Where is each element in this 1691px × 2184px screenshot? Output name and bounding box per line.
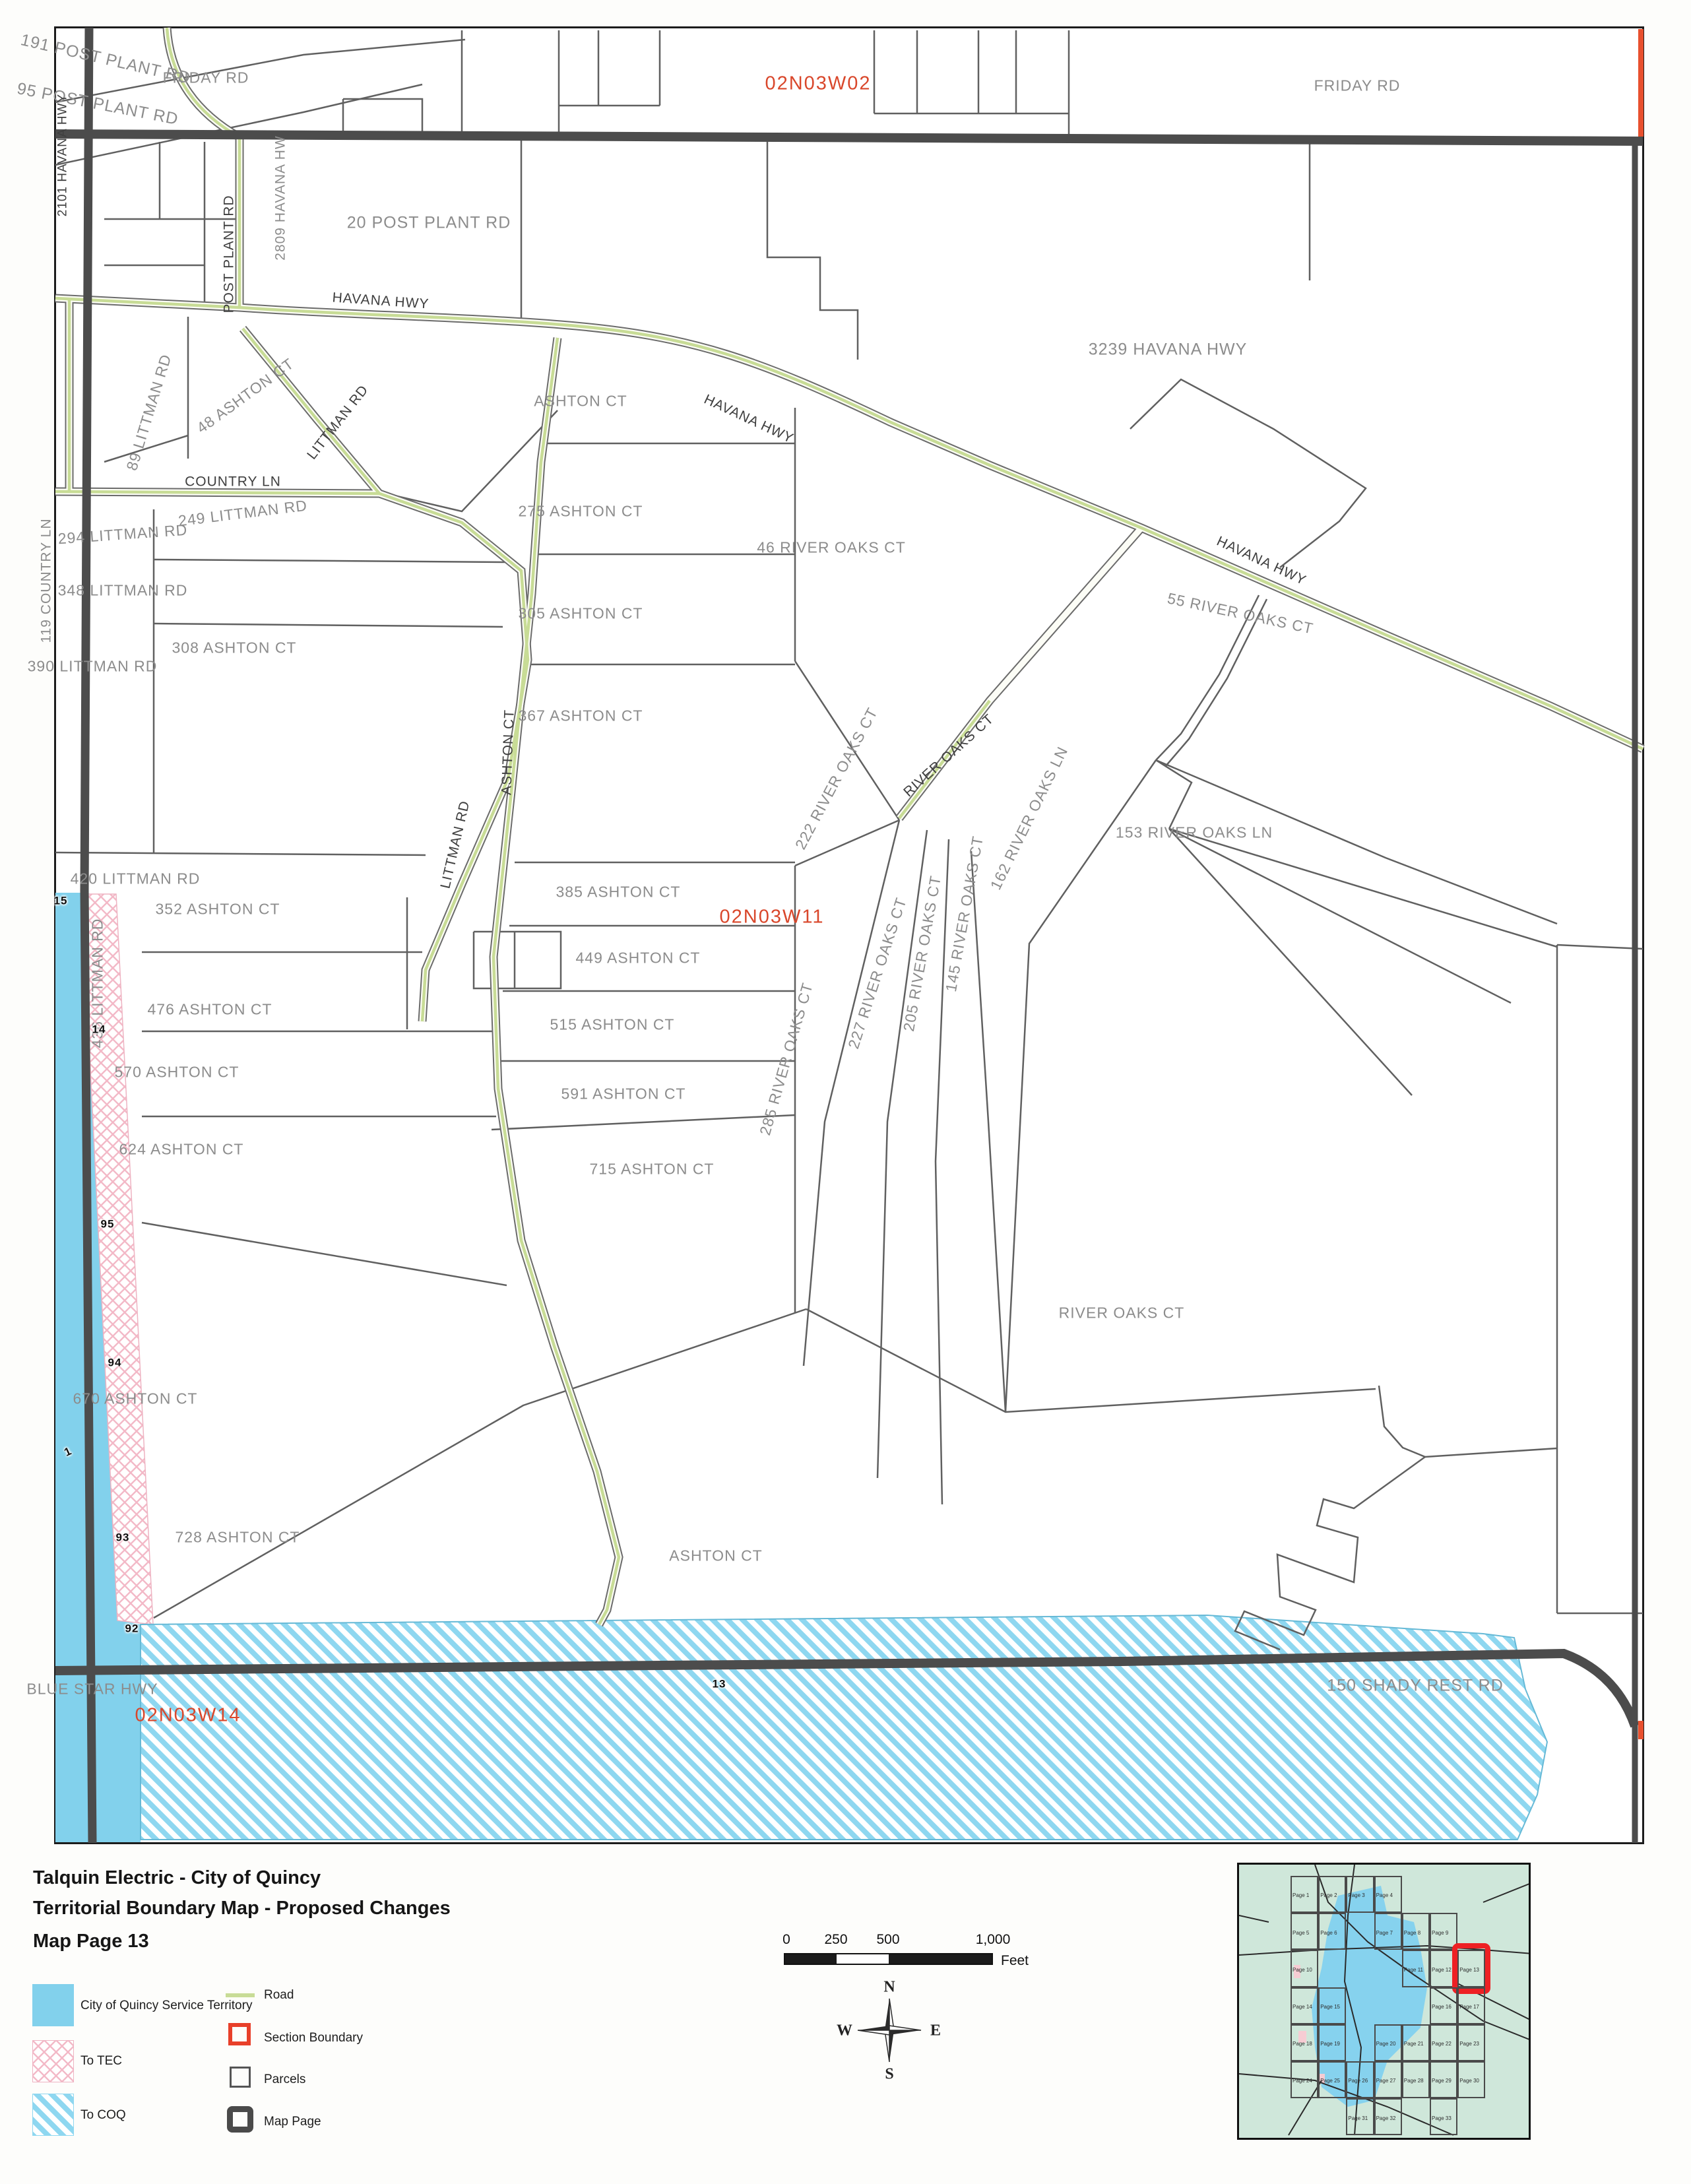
- legend-swatch-parcels: [230, 2067, 251, 2088]
- inset-page-25: Page 25: [1318, 2061, 1346, 2098]
- inset-page-20: Page 20: [1374, 2024, 1402, 2061]
- legend-swatch-quincy-territory: [32, 1984, 74, 2026]
- legend-label-parcels: Parcels: [264, 2072, 305, 2087]
- inset-page-label: Page 27: [1376, 2078, 1396, 2084]
- parcel-number: 15: [54, 895, 68, 907]
- map-label: 390 LITTMAN RD: [28, 659, 158, 674]
- map-label: 308 ASHTON CT: [172, 641, 297, 656]
- map-title: Talquin Electric - City of Quincy: [33, 1867, 321, 1889]
- map-label: 449 ASHTON CT: [576, 951, 701, 966]
- inset-page-label: Page 25: [1320, 2078, 1340, 2084]
- map-label: 46 RIVER OAKS CT: [757, 540, 906, 556]
- map-label: 150 SHADY REST RD: [1327, 1678, 1504, 1694]
- inset-page-6: Page 6: [1318, 1913, 1346, 1950]
- inset-page-label: Page 19: [1320, 2041, 1340, 2047]
- parcel-number: 94: [108, 1357, 122, 1368]
- legend-swatch-to-coq: [32, 2094, 74, 2136]
- compass-s: S: [885, 2066, 893, 2084]
- map-label: 570 ASHTON CT: [115, 1065, 239, 1080]
- map-label: 670 ASHTON CT: [73, 1392, 198, 1407]
- map-label: 2809 HAVANA HW: [274, 135, 288, 260]
- map-label: 2101 HAVANA HWY: [57, 94, 69, 216]
- inset-page-3: Page 3: [1346, 1876, 1374, 1913]
- compass-rose: [846, 1983, 932, 2078]
- map-page-sheet: 191 POST PLANT RD95 POST PLANT RDFRIDAY …: [0, 0, 1691, 2184]
- map-subtitle: Territorial Boundary Map - Proposed Chan…: [33, 1898, 451, 1919]
- parcel-number: 95: [101, 1219, 115, 1230]
- inset-page-label: Page 23: [1459, 2041, 1479, 2047]
- map-label: ASHTON CT: [534, 394, 627, 409]
- map-label: 385 ASHTON CT: [556, 885, 681, 900]
- legend-label-to-tec: To TEC: [80, 2054, 122, 2069]
- section-label: 02N03W02: [765, 75, 871, 94]
- inset-page-label: Page 5: [1292, 1930, 1309, 1936]
- inset-current-page-highlight: [1452, 1943, 1490, 1993]
- inset-page-22: Page 22: [1430, 2024, 1457, 2061]
- inset-page-4: Page 4: [1374, 1876, 1402, 1913]
- inset-page-2: Page 2: [1318, 1876, 1346, 1913]
- inset-page-19: Page 19: [1318, 2024, 1346, 2061]
- inset-page-label: Page 14: [1292, 2004, 1312, 2010]
- legend-label-road: Road: [264, 1988, 294, 2003]
- legend-label-to-coq: To COQ: [80, 2108, 126, 2123]
- map-label: 715 ASHTON CT: [590, 1162, 715, 1177]
- map-label: 275 ASHTON CT: [519, 504, 643, 519]
- compass-w: W: [837, 2022, 852, 2040]
- parcel-number: 93: [116, 1532, 130, 1543]
- map-label: 20 POST PLANT RD: [347, 215, 511, 232]
- map-label: BLUE STAR HWY: [26, 1682, 158, 1697]
- inset-page-label: Page 30: [1459, 2078, 1479, 2084]
- section-label: 02N03W14: [135, 1706, 241, 1725]
- inset-page-label: Page 18: [1292, 2041, 1312, 2047]
- map-label: 153 RIVER OAKS LN: [1116, 825, 1273, 841]
- map-label: 476 ASHTON CT: [148, 1002, 272, 1017]
- inset-page-label: Page 7: [1376, 1930, 1393, 1936]
- legend-swatch-road: [223, 1985, 257, 2005]
- inset-page-label: Page 15: [1320, 2004, 1340, 2010]
- map-label: POST PLANT RD: [222, 195, 236, 313]
- parcel-number: 92: [125, 1623, 139, 1634]
- inset-page-32: Page 32: [1374, 2098, 1402, 2135]
- inset-page-label: Page 21: [1404, 2041, 1424, 2047]
- parcel-number: 14: [92, 1024, 106, 1035]
- map-label: 119 COUNTRY LN: [40, 518, 53, 643]
- map-label: 352 ASHTON CT: [156, 902, 280, 917]
- map-canvas: [0, 0, 1691, 2184]
- scale-tick-0: 0: [782, 1932, 790, 1948]
- map-label: 728 ASHTON CT: [175, 1530, 300, 1545]
- map-label: FRIDAY RD: [1314, 79, 1401, 94]
- map-label: ASHTON CT: [669, 1549, 762, 1564]
- map-page-number: Map Page 13: [33, 1931, 149, 1952]
- inset-page-label: Page 9: [1432, 1930, 1448, 1936]
- scale-tick-500: 500: [876, 1932, 899, 1948]
- green-roads: [55, 28, 1643, 1624]
- inset-page-10: Page 10: [1291, 1950, 1318, 1987]
- map-label: 305 ASHTON CT: [519, 606, 643, 622]
- inset-page-14: Page 14: [1291, 1987, 1318, 2024]
- inset-page-24: Page 24: [1291, 2061, 1318, 2098]
- map-label: 624 ASHTON CT: [119, 1142, 244, 1157]
- inset-page-31: Page 31: [1346, 2098, 1374, 2135]
- inset-page-11: Page 11: [1402, 1950, 1430, 1987]
- inset-page-label: Page 8: [1404, 1930, 1420, 1936]
- thick-roads: [55, 28, 1643, 1843]
- inset-page-5: Page 5: [1291, 1913, 1318, 1950]
- inset-page-label: Page 4: [1376, 1892, 1393, 1898]
- inset-page-28: Page 28: [1402, 2061, 1430, 2098]
- compass-e: E: [930, 2022, 941, 2040]
- inset-page-label: Page 1: [1292, 1892, 1309, 1898]
- inset-page-30: Page 30: [1457, 2061, 1485, 2098]
- inset-page-label: Page 2: [1320, 1892, 1337, 1898]
- inset-page-27: Page 27: [1374, 2061, 1402, 2098]
- parcel-number: 13: [713, 1679, 726, 1690]
- inset-page-8: Page 8: [1402, 1913, 1430, 1950]
- compass-n: N: [883, 1979, 895, 1997]
- inset-page-label: Page 20: [1376, 2041, 1396, 2047]
- inset-page-label: Page 3: [1348, 1892, 1364, 1898]
- map-label: FRIDAY RD: [163, 71, 249, 86]
- legend-swatch-map-page: [227, 2106, 253, 2133]
- inset-page-21: Page 21: [1402, 2024, 1430, 2061]
- inset-page-label: Page 32: [1376, 2115, 1396, 2121]
- map-label: 3239 HAVANA HWY: [1089, 342, 1248, 358]
- inset-page-29: Page 29: [1430, 2061, 1457, 2098]
- inset-page-23: Page 23: [1457, 2024, 1485, 2061]
- inset-page-16: Page 16: [1430, 1987, 1457, 2024]
- inset-page-label: Page 22: [1432, 2041, 1452, 2047]
- inset-page-15: Page 15: [1318, 1987, 1346, 2024]
- scale-unit: Feet: [1001, 1953, 1029, 1969]
- scale-tick-250: 250: [824, 1932, 847, 1948]
- inset-page-label: Page 31: [1348, 2115, 1368, 2121]
- map-label: 515 ASHTON CT: [550, 1017, 675, 1033]
- inset-page-label: Page 26: [1348, 2078, 1368, 2084]
- inset-page-17: Page 17: [1457, 1987, 1485, 2024]
- inset-page-26: Page 26: [1346, 2061, 1374, 2098]
- inset-page-label: Page 24: [1292, 2078, 1312, 2084]
- legend-label-section-boundary: Section Boundary: [264, 2031, 363, 2045]
- scale-tick-1000: 1,000: [976, 1932, 1011, 1948]
- scale-bar: [784, 1953, 993, 1965]
- map-label: RIVER OAKS CT: [1059, 1306, 1185, 1321]
- legend-swatch-section-boundary: [228, 2023, 251, 2045]
- inset-page-label: Page 33: [1432, 2115, 1452, 2121]
- legend-swatch-to-tec: [32, 2040, 74, 2082]
- map-label: 591 ASHTON CT: [561, 1087, 686, 1102]
- inset-page-label: Page 16: [1432, 2004, 1452, 2010]
- parcel-lines: [55, 30, 1643, 1650]
- inset-page-label: Page 10: [1292, 1967, 1312, 1973]
- inset-page-label: Page 17: [1459, 2004, 1479, 2010]
- to-coq-band: [141, 1615, 1547, 1840]
- inset-page-label: Page 29: [1432, 2078, 1452, 2084]
- inset-locator-map: Page 1Page 2Page 3Page 4Page 5Page 6Page…: [1237, 1863, 1531, 2140]
- map-label: ASHTON CT: [499, 709, 517, 796]
- map-label: 348 LITTMAN RD: [58, 583, 188, 598]
- map-label: 367 ASHTON CT: [519, 709, 643, 724]
- inset-page-label: Page 11: [1404, 1967, 1423, 1973]
- inset-page-label: Page 12: [1432, 1967, 1452, 1973]
- inset-page-1: Page 1: [1291, 1876, 1318, 1913]
- map-label: 420 LITTMAN RD: [71, 872, 201, 887]
- inset-page-label: Page 28: [1404, 2078, 1424, 2084]
- inset-page-18: Page 18: [1291, 2024, 1318, 2061]
- map-label: COUNTRY LN: [185, 475, 281, 489]
- inset-page-33: Page 33: [1430, 2098, 1457, 2135]
- legend-label-map-page: Map Page: [264, 2115, 321, 2129]
- section-label: 02N03W11: [720, 908, 825, 927]
- inset-page-label: Page 6: [1320, 1930, 1337, 1936]
- inset-page-7: Page 7: [1374, 1913, 1402, 1950]
